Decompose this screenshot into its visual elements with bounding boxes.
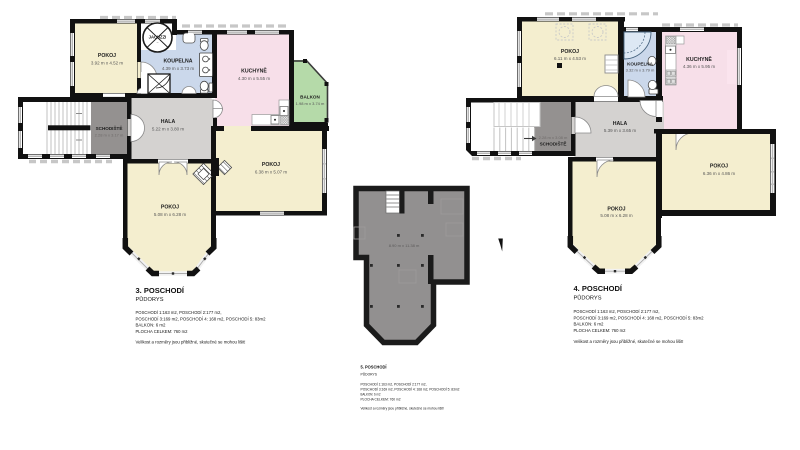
svg-text:PŮDORYS: PŮDORYS: [361, 372, 378, 377]
svg-text:HALA: HALA: [613, 121, 628, 127]
svg-text:HALA: HALA: [161, 119, 176, 125]
svg-text:PŮDORYS: PŮDORYS: [574, 295, 603, 302]
svg-text:4.39 m x 3.73 m: 4.39 m x 3.73 m: [162, 66, 195, 71]
svg-text:POSCHODÍ 3:169 m2, POSCHODÍ 4:: POSCHODÍ 3:169 m2, POSCHODÍ 4: 168 m2, P…: [574, 314, 704, 321]
svg-text:BALKON: 6 m2: BALKON: 6 m2: [574, 322, 604, 328]
svg-text:POSCHODÍ 1:163 m2, POSCHODÍ 2:: POSCHODÍ 1:163 m2, POSCHODÍ 2:177 m2,: [361, 383, 427, 387]
svg-text:~: ~: [156, 41, 158, 45]
svg-text:KUCHYNĚ: KUCHYNĚ: [686, 55, 712, 63]
svg-text:3.92 m x 4.52 m: 3.92 m x 4.52 m: [91, 61, 124, 66]
svg-text:5.22 m x 3.80 m: 5.22 m x 3.80 m: [152, 127, 185, 132]
svg-text:BALKON: 6 m2: BALKON: 6 m2: [136, 323, 166, 329]
svg-text:2.28 m x 3.08 m: 2.28 m x 3.08 m: [539, 135, 568, 140]
svg-text:3.32 m x 3.79 m: 3.32 m x 3.79 m: [626, 68, 655, 73]
svg-text:POKOJ: POKOJ: [262, 162, 280, 168]
svg-text:KUCHYNĚ: KUCHYNĚ: [241, 67, 267, 75]
svg-text:5.08 m x 6.28 m: 5.08 m x 6.28 m: [600, 213, 633, 218]
svg-text:Velikost a rozměry jsou přibli: Velikost a rozměry jsou přibližné, skute…: [361, 407, 445, 411]
svg-text:POSCHODÍ 3:169 m2, POSCHODÍ 4:: POSCHODÍ 3:169 m2, POSCHODÍ 4: 168 m2, P…: [136, 315, 266, 322]
svg-text:POKOJ: POKOJ: [161, 205, 179, 211]
svg-text:POSCHODÍ 1:163 m2, POSCHODÍ 2:: POSCHODÍ 1:163 m2, POSCHODÍ 2:177 m2,: [136, 309, 222, 316]
svg-text:POSCHODÍ 1:163 m2, POSCHODÍ 2:: POSCHODÍ 1:163 m2, POSCHODÍ 2:177 m2,: [574, 308, 660, 315]
svg-text:POSCHODÍ 3:169 m2, POSCHODÍ 4:: POSCHODÍ 3:169 m2, POSCHODÍ 4: 168 m2, P…: [361, 388, 460, 392]
svg-text:4.30 m x 5.55 m: 4.30 m x 5.55 m: [238, 76, 271, 81]
svg-text:3. POSCHODÍ: 3. POSCHODÍ: [136, 286, 186, 295]
svg-text:5. POSCHODÍ: 5. POSCHODÍ: [361, 365, 388, 370]
svg-text:SCHODIŠTĚ: SCHODIŠTĚ: [540, 140, 567, 147]
svg-text:2.28 m x 3.17 m: 2.28 m x 3.17 m: [95, 133, 124, 138]
svg-text:4.36 m x 5.95 m: 4.36 m x 5.95 m: [683, 64, 716, 69]
svg-text:Velikost a rozměry jsou přibli: Velikost a rozměry jsou přibližné, skute…: [574, 339, 684, 345]
svg-text:4. POSCHODÍ: 4. POSCHODÍ: [574, 284, 624, 293]
svg-text:POKOJ: POKOJ: [607, 207, 625, 213]
svg-text:Velikost a rozměry jsou přibli: Velikost a rozměry jsou přibližné, skute…: [136, 340, 246, 346]
svg-text:PLOCHA CELKEM: 760 m2: PLOCHA CELKEM: 760 m2: [361, 397, 401, 401]
svg-text:5.39 m x 3.65 m: 5.39 m x 3.65 m: [604, 128, 637, 133]
svg-text:PŮDORYS: PŮDORYS: [136, 296, 165, 303]
svg-text:1.98 m x 3.74 m: 1.98 m x 3.74 m: [296, 101, 325, 106]
svg-text:BALKON: BALKON: [300, 95, 320, 100]
svg-text:5.08 m x 6.28 m: 5.08 m x 6.28 m: [154, 212, 187, 217]
svg-text:PLOCHA CELKEM: 760 m2: PLOCHA CELKEM: 760 m2: [574, 328, 626, 334]
svg-text:6.36 m x 4.86 m: 6.36 m x 4.86 m: [703, 171, 736, 176]
svg-text:6.38 m x 5.07 m: 6.38 m x 5.07 m: [255, 170, 288, 175]
svg-text:POKOJ: POKOJ: [98, 53, 116, 59]
svg-text:8.90 m x 11.38 m: 8.90 m x 11.38 m: [389, 243, 420, 248]
svg-text:PLOCHA CELKEM: 760 m2: PLOCHA CELKEM: 760 m2: [136, 329, 188, 335]
svg-text:POKOJ: POKOJ: [710, 164, 728, 170]
svg-text:SCHODIŠTĚ: SCHODIŠTĚ: [96, 124, 123, 131]
svg-text:JACUZZI: JACUZZI: [149, 35, 167, 40]
svg-text:KOUPELNA: KOUPELNA: [163, 59, 192, 65]
svg-text:KOUPELNA: KOUPELNA: [627, 62, 653, 67]
svg-text:6.11 m x 4.53 m: 6.11 m x 4.53 m: [554, 56, 586, 61]
svg-text:POKOJ: POKOJ: [561, 49, 579, 55]
svg-text:BALKON: 6 m2: BALKON: 6 m2: [361, 393, 381, 397]
